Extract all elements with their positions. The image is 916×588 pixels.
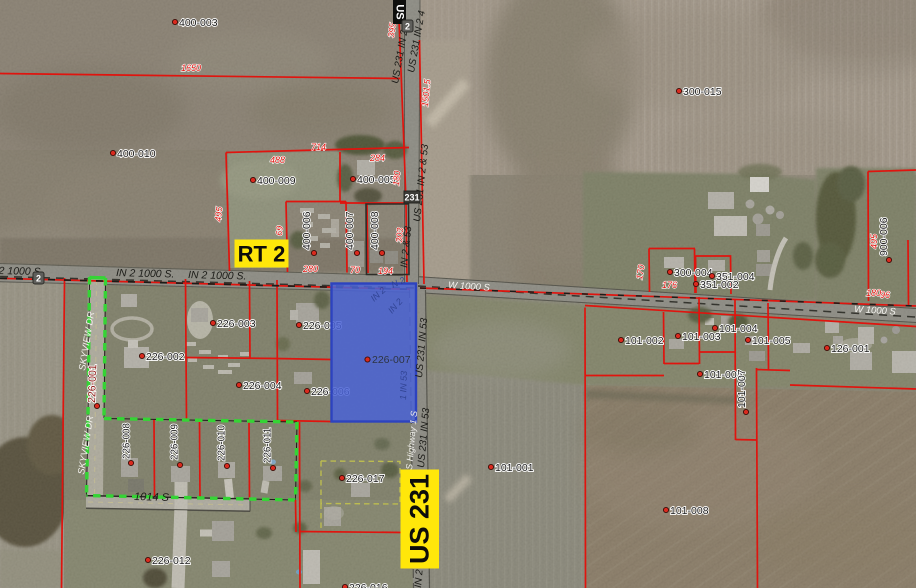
svg-text:300-004: 300-004 (674, 267, 713, 279)
svg-text:101-007: 101-007 (736, 369, 748, 408)
svg-text:400-010: 400-010 (117, 148, 156, 160)
svg-text:226-017: 226-017 (346, 473, 385, 485)
svg-text:400-009: 400-009 (257, 175, 296, 187)
svg-text:101-001: 101-001 (495, 462, 534, 474)
svg-text:226-004: 226-004 (243, 380, 282, 392)
svg-text:714: 714 (311, 142, 326, 152)
svg-text:280: 280 (302, 264, 318, 274)
svg-text:2: 2 (36, 274, 41, 284)
svg-text:101-003: 101-003 (682, 331, 721, 343)
svg-text:RT 2: RT 2 (238, 242, 286, 267)
svg-text:1 IN 53: 1 IN 53 (398, 371, 409, 400)
svg-text:226-008: 226-008 (122, 422, 133, 459)
svg-text:400-008: 400-008 (369, 211, 381, 250)
svg-text:US 231: US 231 (405, 474, 435, 564)
svg-text:194: 194 (378, 266, 393, 276)
svg-text:400-007: 400-007 (344, 211, 356, 250)
svg-text:400-005: 400-005 (357, 174, 396, 186)
svg-text:1650: 1650 (181, 63, 201, 73)
svg-text:176: 176 (662, 280, 677, 290)
svg-text:2: 2 (405, 22, 410, 32)
svg-text:300-015: 300-015 (683, 86, 722, 98)
svg-text:101-005: 101-005 (752, 335, 791, 347)
svg-text:226-002: 226-002 (146, 351, 185, 363)
svg-text:101-008: 101-008 (670, 505, 709, 517)
svg-text:400-006: 400-006 (301, 211, 313, 250)
svg-text:69: 69 (274, 225, 285, 236)
svg-text:495: 495 (213, 205, 224, 222)
svg-text:180: 180 (866, 288, 881, 298)
svg-text:495: 495 (869, 233, 879, 249)
svg-text:IN 2 1000 S.: IN 2 1000 S. (188, 269, 247, 283)
svg-text:226-011: 226-011 (263, 428, 274, 463)
svg-text:1014 S: 1014 S (134, 491, 170, 504)
svg-text:284: 284 (369, 153, 385, 163)
svg-text:IN 2 1000 S.: IN 2 1000 S. (116, 267, 175, 281)
svg-text:96: 96 (880, 290, 890, 300)
svg-text:101-004: 101-004 (719, 323, 758, 335)
svg-text:226-003: 226-003 (217, 318, 256, 330)
svg-text:400-003: 400-003 (179, 17, 218, 29)
svg-text:70: 70 (350, 265, 360, 275)
svg-text:101-002: 101-002 (625, 335, 664, 347)
svg-text:351-002: 351-002 (700, 279, 739, 291)
svg-text:226-009: 226-009 (170, 424, 181, 460)
svg-text:488: 488 (270, 155, 285, 165)
svg-text:226-012: 226-012 (152, 555, 191, 567)
svg-text:180: 180 (391, 170, 402, 186)
svg-text:126-001: 126-001 (831, 343, 870, 355)
svg-text:226-007: 226-007 (372, 354, 411, 366)
svg-text:IN 2: IN 2 (413, 569, 426, 588)
svg-text:231: 231 (404, 193, 419, 203)
svg-text:US: US (394, 4, 406, 19)
svg-text:226-016: 226-016 (349, 582, 388, 588)
svg-text:226-010: 226-010 (217, 424, 228, 461)
svg-text:900-006: 900-006 (878, 217, 890, 256)
